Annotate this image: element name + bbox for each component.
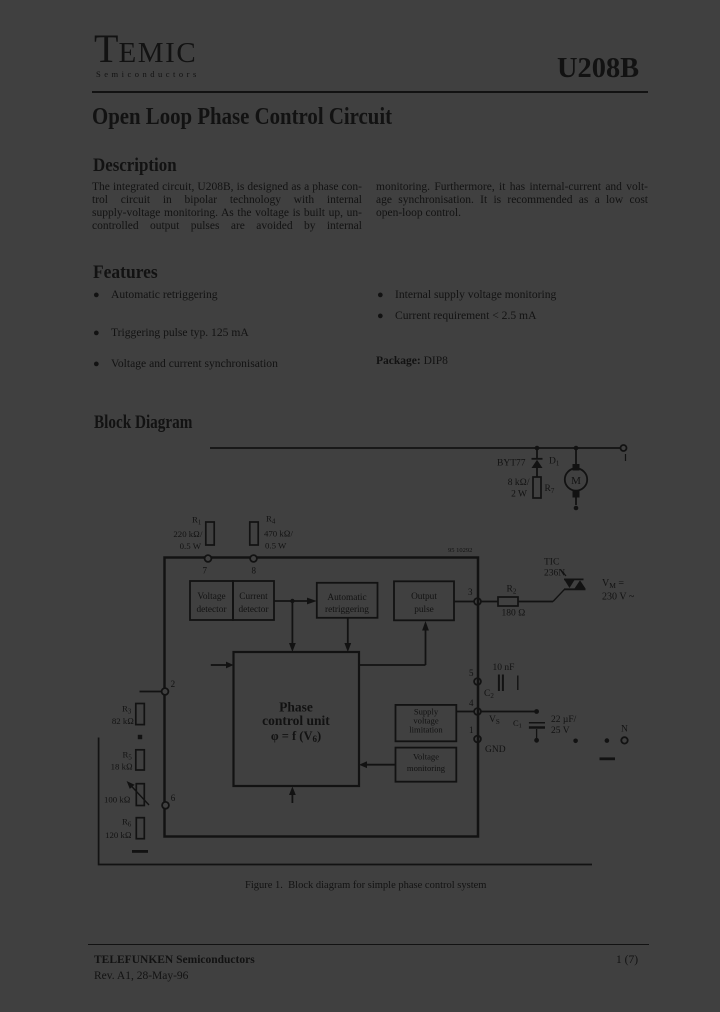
svg-text:C2: C2 [484,689,494,700]
svg-text:95 10292: 95 10292 [448,547,472,554]
svg-text:C1: C1 [513,718,522,730]
svg-text:230 V ~: 230 V ~ [602,592,635,603]
svg-text:R5: R5 [123,750,133,762]
svg-text:N: N [621,725,628,735]
svg-text:180 Ω: 180 Ω [502,609,526,619]
svg-text:detector: detector [239,605,270,615]
svg-text:control unit: control unit [262,713,330,728]
svg-text:0.5 W: 0.5 W [180,541,202,551]
svg-text:R1: R1 [192,515,201,527]
svg-text:25 V: 25 V [551,726,570,736]
svg-text:detector: detector [197,605,228,615]
svg-text:φ = f (V6): φ = f (V6) [271,729,321,744]
svg-text:18 kΩ: 18 kΩ [111,761,133,771]
svg-text:Voltage: Voltage [197,592,225,602]
svg-text:236N: 236N [544,569,565,579]
svg-text:3: 3 [468,587,473,597]
svg-text:120 kΩ: 120 kΩ [105,830,132,840]
svg-text:D1: D1 [549,457,560,468]
svg-text:retriggering: retriggering [325,605,369,615]
svg-text:R4: R4 [266,514,276,526]
svg-text:R6: R6 [122,817,132,829]
svg-text:220 kΩ/: 220 kΩ/ [173,529,203,539]
svg-text:R7: R7 [545,484,555,495]
svg-text:8 kΩ/: 8 kΩ/ [508,478,530,488]
svg-text:7: 7 [203,566,208,576]
svg-text:M: M [571,475,581,487]
svg-text:10 nF: 10 nF [493,663,515,673]
svg-text:22 µF/: 22 µF/ [551,715,577,725]
svg-text:1: 1 [469,725,474,735]
svg-text:470 kΩ/: 470 kΩ/ [264,528,294,538]
svg-text:R2: R2 [507,585,517,596]
svg-text:100 kΩ: 100 kΩ [104,794,131,804]
svg-text:R3: R3 [122,704,132,716]
svg-text:Output: Output [411,592,437,602]
svg-text:8: 8 [252,566,257,576]
svg-text:VS: VS [489,715,500,726]
svg-text:TIC: TIC [544,558,559,568]
svg-text:6: 6 [171,793,176,803]
svg-text:monitoring: monitoring [407,763,446,773]
svg-text:Voltage: Voltage [413,752,439,762]
svg-text:Automatic: Automatic [327,593,366,603]
svg-text:limitation: limitation [409,725,443,735]
svg-text:82 kΩ: 82 kΩ [112,716,134,726]
svg-text:2 W: 2 W [511,490,527,500]
svg-text:0.5 W: 0.5 W [265,540,287,550]
svg-text:BYT77: BYT77 [497,459,526,469]
svg-text:5: 5 [469,668,474,678]
svg-text:2: 2 [171,679,176,689]
svg-text:4: 4 [469,698,474,708]
svg-text:pulse: pulse [414,605,434,615]
svg-text:Current: Current [239,592,268,602]
svg-text:GND: GND [485,745,506,755]
svg-text:VM =: VM = [602,578,624,590]
